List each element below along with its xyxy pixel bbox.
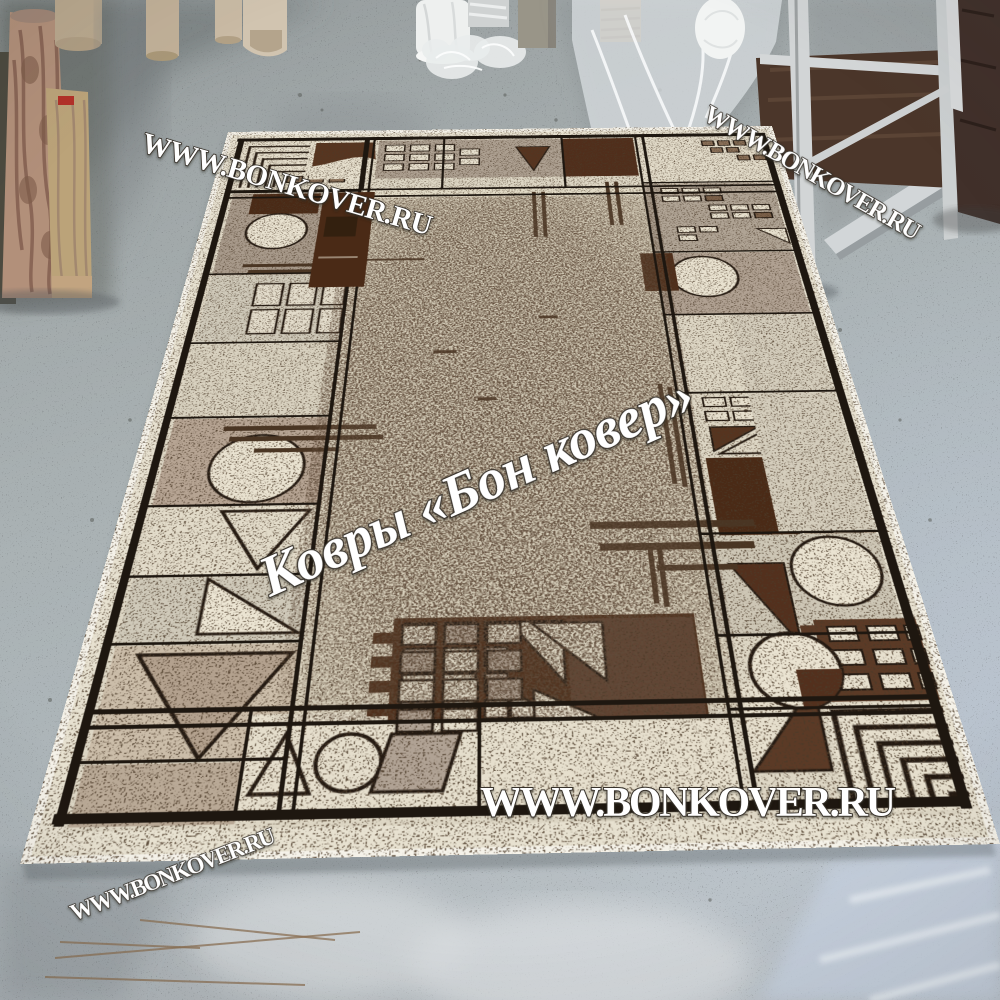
svg-text:WWW.BONKOVER.RU: WWW.BONKOVER.RU <box>138 127 436 242</box>
svg-text:WWW.BONKOVER.RU: WWW.BONKOVER.RU <box>480 780 896 826</box>
svg-text:Ковры «Бон ковер»: Ковры «Бон ковер» <box>249 362 704 609</box>
svg-text:WWW.BONKOVER.RU: WWW.BONKOVER.RU <box>67 823 280 926</box>
svg-text:WWW.BONKOVER.RU: WWW.BONKOVER.RU <box>699 101 925 246</box>
